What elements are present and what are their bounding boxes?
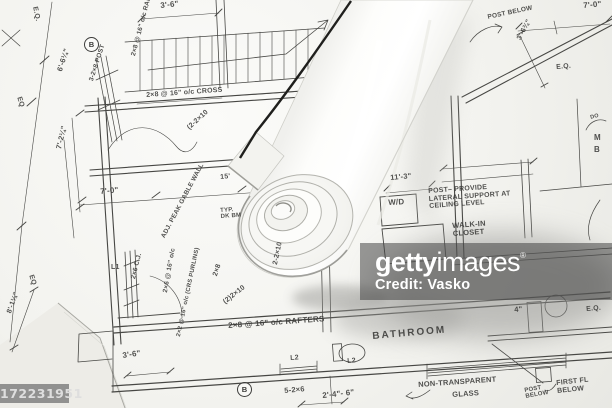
plan-annotation: E.Q. [556, 63, 571, 72]
plan-annotation: L2 [347, 357, 356, 365]
reference-marker-b: B [84, 37, 99, 52]
plan-annotation: B [594, 146, 600, 155]
plan-annotation: (2-2×10 [186, 109, 210, 132]
plan-annotation: EQ [15, 96, 25, 108]
plan-annotation: (2)2×10 [222, 284, 247, 306]
plan-annotation: BATHROOM [372, 326, 447, 343]
plan-annotation: 2×8 [212, 263, 223, 277]
plan-annotation: 3'-6¾" [516, 18, 533, 41]
plan-annotation: W/D [388, 198, 405, 207]
plan-annotation: ADJ. PEAK GABLE WALL [160, 162, 205, 239]
plan-annotation: 2×8 @ 16" o/c RAF. [130, 0, 153, 57]
plan-annotation: 2×8 @ 16" o/c RAFTERS [228, 315, 325, 330]
plan-annotation: NON-TRANSPARENT [418, 376, 497, 390]
plan-annotation: 8'-1¼" [6, 291, 21, 314]
plan-annotation: POST BELOW [524, 383, 554, 401]
plan-annotation: 15' [220, 173, 231, 181]
plan-annotation: EQ [27, 274, 37, 286]
getty-logo-light: images [437, 247, 520, 277]
plan-annotation: 3'-6" [122, 349, 141, 360]
plan-annotation: FIRST FL BELOW [556, 375, 605, 395]
image-id-badge: 172231951 [0, 384, 69, 403]
plan-annotation: 2'-4"- 6" [322, 389, 355, 401]
registered-mark: ® [520, 251, 525, 260]
reference-marker-b: B [237, 382, 252, 397]
plan-annotation: E.Q. [586, 305, 601, 314]
getty-logo: gettyimages® [375, 248, 612, 276]
plan-annotation: DO [590, 114, 600, 122]
annotation-layer: E.Q.3'-6"POST BELOW7'-0"3'-6¾"E.Q.6'-6¼"… [0, 0, 612, 408]
plan-annotation: GLASS [452, 389, 479, 399]
plan-annotation: 2×6 C.J. [130, 252, 143, 279]
blueprint-photo: E.Q.3'-6"POST BELOW7'-0"3'-6¾"E.Q.6'-6¼"… [0, 0, 612, 408]
plan-annotation: 2×6 @ 16" o/c [162, 248, 177, 294]
plan-annotation: 7'-0" [100, 186, 119, 196]
plan-annotation: 5-2×6 [284, 385, 305, 395]
plan-annotation: L1 [111, 264, 120, 272]
plan-annotation: 6'-6¼" [56, 48, 71, 73]
plan-annotation: 7'-0" [583, 0, 602, 10]
plan-annotation: 2×8 @ 16" o/c CROSS [146, 87, 223, 100]
watermark-credit: Credit: Vasko [375, 277, 612, 293]
getty-watermark: gettyimages® Credit: Vasko [360, 243, 612, 300]
plan-annotation: 11'-3" [390, 172, 412, 182]
plan-annotation: 2×2 @ 16" o/c (CRS PURLINS) [176, 247, 201, 337]
plan-annotation: 7'-2¼" [55, 125, 69, 150]
plan-annotation: POST– PROVIDE LATERAL SUPPORT AT CEILING… [428, 182, 519, 211]
plan-annotation: WALK-IN CLOSET [452, 219, 503, 239]
getty-logo-bold: getty [375, 247, 437, 277]
plan-annotation: 4" [514, 305, 523, 314]
plan-annotation: M [594, 134, 601, 143]
plan-annotation: 2-2×10 [272, 241, 284, 265]
plan-annotation: L2 [290, 354, 299, 362]
plan-annotation: TYP. DK BM [220, 206, 245, 221]
plan-annotation: 3'-6" [160, 0, 179, 10]
plan-annotation: E.Q. [31, 6, 41, 22]
